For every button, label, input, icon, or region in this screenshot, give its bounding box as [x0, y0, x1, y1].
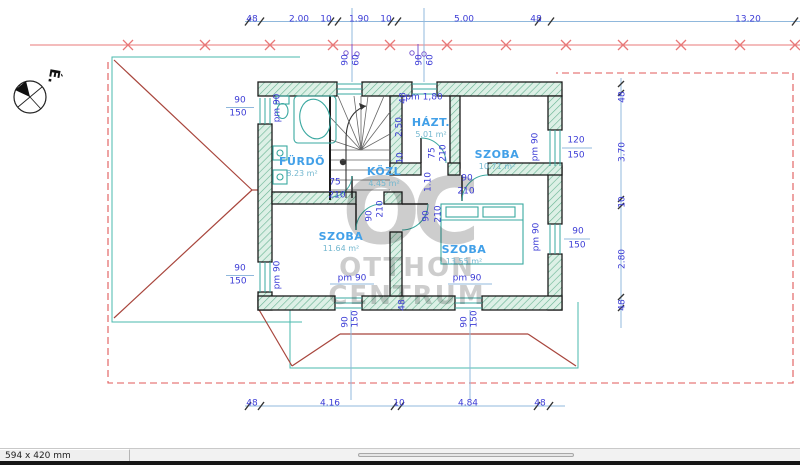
dimension-label: 150	[229, 110, 246, 119]
dimension-label: 2.00	[289, 16, 309, 25]
compass-icon	[14, 81, 46, 113]
dimension-label: 13.20	[735, 16, 761, 25]
room-area: 13.55 m²	[446, 257, 482, 266]
dimension-label: 10	[380, 16, 391, 25]
dimension-label: pm 90	[532, 133, 541, 162]
dimension-label: 3.70	[619, 142, 628, 162]
room-name: HÁZT.	[412, 117, 450, 130]
section-line	[30, 40, 800, 50]
dimension-label: 210	[457, 188, 474, 197]
room-label: KÖZL4.45 m²	[367, 166, 401, 188]
dimension-label: 60	[353, 54, 362, 65]
dimension-label: 210	[377, 200, 386, 217]
dimension-label: 5.00	[454, 16, 474, 25]
room-label: SZOBA11.64 m²	[319, 231, 364, 253]
dimension-label: 4.84	[458, 400, 478, 409]
dimension-label: pm 90	[274, 261, 283, 290]
room-name: SZOBA	[442, 244, 487, 257]
room-label: SZOBA10.71 m²	[475, 149, 520, 171]
north-label: É.	[44, 67, 62, 84]
dimension-label: 2.80	[619, 249, 628, 269]
dimension-label: 210	[435, 205, 444, 222]
dimension-label: 48	[534, 400, 545, 409]
dimension-label: 48	[619, 91, 628, 102]
walls	[258, 82, 562, 310]
dimension-label: 90	[342, 316, 351, 327]
dimension-label: 48	[400, 92, 409, 103]
dimension-label: pm 90	[274, 94, 283, 123]
dimension-label: 60	[427, 54, 436, 65]
dimension-label: 10	[393, 400, 404, 409]
dimension-label: 1.10	[425, 172, 434, 192]
dimension-ticks	[245, 18, 798, 411]
dimension-label: 120	[567, 137, 584, 146]
room-label: SZOBA13.55 m²	[442, 244, 487, 266]
room-name: SZOBA	[475, 149, 520, 162]
dimension-label: pm 90	[533, 223, 542, 252]
dimension-label: 90	[366, 210, 375, 221]
dimension-label: 150	[567, 152, 584, 161]
dimension-label: 48	[246, 400, 257, 409]
drawing-canvas[interactable]	[0, 0, 800, 465]
page-size-indicator: 594 x 420 mm	[0, 449, 130, 461]
dimension-label: 48	[399, 299, 408, 310]
room-name: KÖZL	[367, 166, 401, 179]
dimension-label: 10	[320, 16, 331, 25]
dimension-label: 90	[234, 265, 245, 274]
dimension-label: 75	[329, 179, 340, 188]
room-area: 10.71 m²	[479, 162, 515, 171]
dimension-label: pm 90	[338, 275, 367, 284]
dimension-label: 150	[568, 242, 585, 251]
dimension-label: 210	[440, 144, 449, 161]
room-name: SZOBA	[319, 231, 364, 244]
dimension-label: 90	[572, 228, 583, 237]
dimension-label: 1.90	[349, 16, 369, 25]
room-area: 8.23 m²	[286, 169, 317, 178]
dimension-label: 150	[352, 310, 361, 327]
dimension-label: 90	[461, 316, 470, 327]
dimension-label: 150	[229, 278, 246, 287]
dimension-label: 48	[246, 16, 257, 25]
room-label: FÜRDŐ8.23 m²	[279, 156, 325, 178]
dimension-label: 48	[619, 299, 628, 310]
dimension-label: 150	[471, 310, 480, 327]
room-label: HÁZT.5.01 m²	[412, 117, 450, 139]
dimension-label: 90	[342, 54, 351, 65]
doors	[333, 138, 488, 230]
dimension-label: 10	[619, 196, 628, 207]
dimension-label: 2.50	[396, 117, 405, 137]
horizontal-scrollbar[interactable]	[358, 453, 574, 457]
window-bottom-edge	[0, 461, 800, 465]
dimension-label: pm 1,80	[405, 94, 442, 103]
room-area: 4.45 m²	[368, 179, 399, 188]
dimension-label: 4.16	[320, 400, 340, 409]
dimension-label: pm 90	[453, 275, 482, 284]
room-name: FÜRDŐ	[279, 156, 325, 169]
dimension-label: 90	[416, 54, 425, 65]
status-bar: 594 x 420 mm	[0, 448, 800, 461]
dimension-label: 210	[328, 192, 345, 201]
room-area: 11.64 m²	[323, 244, 359, 253]
dimension-label: 90	[461, 175, 472, 184]
dimension-label: 75	[429, 147, 438, 158]
dimension-label: 48	[530, 16, 541, 25]
dimension-label: 90	[423, 210, 432, 221]
dimension-label: 90	[234, 97, 245, 106]
room-area: 5.01 m²	[415, 130, 446, 139]
dimension-label: 10	[397, 152, 406, 163]
floorplan-viewer: OC OTTHON CENTRUM 482.00101.90105.004813…	[0, 0, 800, 465]
